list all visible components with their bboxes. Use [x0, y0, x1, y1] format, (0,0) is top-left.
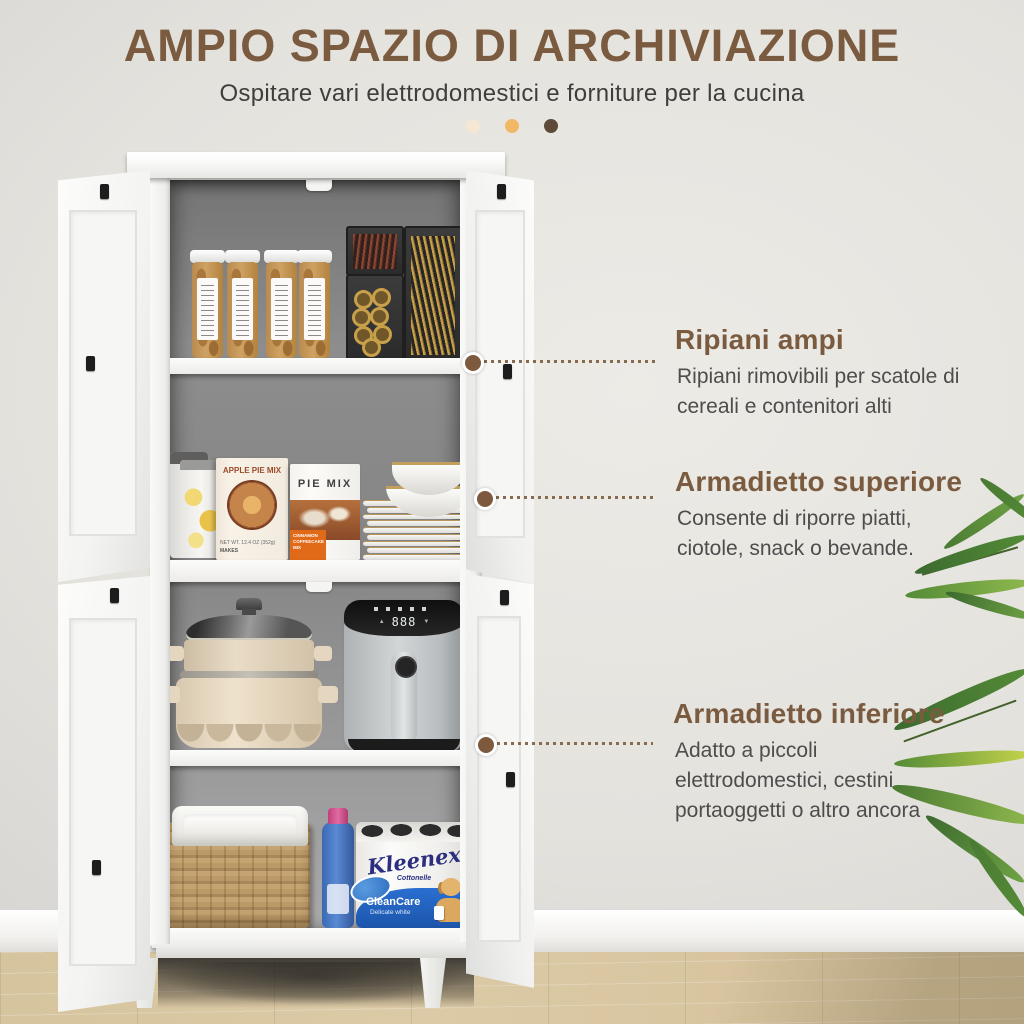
apple-pie-box-net-weight: NET WT. 12.4 OZ (352g)	[220, 540, 275, 546]
jar-label	[271, 278, 292, 340]
kleenex-delicate-white: Delicate white	[370, 909, 410, 916]
upper-left-door	[58, 168, 150, 582]
hinge-icon	[503, 364, 512, 379]
display-digits: 888	[392, 615, 417, 629]
floor-shadow	[600, 952, 1024, 1024]
hinge-icon	[92, 860, 101, 875]
callout-dot-inferiore	[475, 734, 497, 756]
air-fryer-icons	[374, 607, 434, 611]
decor-dot-1	[466, 119, 480, 133]
toilet-paper-pack: Kleenex Cottonelle CleanCare Delicate wh…	[356, 822, 472, 928]
lower-right-door	[466, 574, 534, 988]
door-catch-middle	[306, 582, 332, 592]
door-catch-top	[306, 180, 332, 191]
apple-pie-mix-box: APPLE PIE MIX NET WT. 12.4 OZ (352g) MAK…	[216, 458, 288, 560]
noodle-container	[346, 226, 404, 276]
door-panel	[69, 618, 137, 966]
callout-line-inferiore	[497, 742, 653, 745]
pie-mix-box: PIE MIX CINNAMON COFFEECAKE MIX	[290, 464, 360, 560]
cabinet-plinth	[156, 944, 476, 958]
jar-label	[304, 278, 325, 340]
door-panel	[69, 210, 137, 536]
cabinet-left-stile	[150, 176, 170, 946]
callout-body: Consente di riporre piatti, ciotole, sna…	[677, 504, 977, 564]
decor-dots	[0, 119, 1024, 133]
hinge-icon	[100, 184, 109, 199]
hinge-icon	[500, 590, 509, 605]
detergent-bottle	[322, 822, 354, 928]
glass-lid	[186, 615, 312, 641]
decor-dot-2	[505, 119, 519, 133]
up-arrow-icon: ▲	[379, 619, 385, 625]
callout-armadietto-inferiore: Armadietto inferiore Adatto a piccoli el…	[673, 698, 1003, 825]
jar-label	[197, 278, 218, 340]
callout-armadietto-superiore: Armadietto superiore Consente di riporre…	[675, 466, 1005, 564]
jar-label	[232, 278, 253, 340]
paper-rolls-top	[356, 822, 472, 842]
pasta-nest-container	[346, 274, 404, 362]
callout-body: Ripiani rimovibili per scatole di cereal…	[677, 362, 977, 422]
pie-box-title: PIE MIX	[290, 478, 360, 490]
down-arrow-icon: ▼	[423, 619, 429, 625]
basket-liner	[172, 806, 308, 846]
callout-title: Armadietto inferiore	[673, 698, 1003, 730]
almond-jar	[299, 250, 330, 358]
hinge-icon	[497, 184, 506, 199]
hinge-icon	[110, 588, 119, 603]
callout-body: Adatto a piccoli elettrodomestici, cesti…	[675, 736, 947, 825]
page-title: AMPIO SPAZIO DI ARCHIVIAZIONE	[0, 20, 1024, 72]
cabinet-top-board	[127, 152, 505, 178]
hinge-icon	[506, 772, 515, 787]
page-subtitle: Ospitare vari elettrodomestici e fornitu…	[0, 80, 1024, 108]
almond-jar	[227, 250, 258, 358]
product-infographic: AMPIO SPAZIO DI ARCHIVIAZIONE Ospitare v…	[0, 0, 1024, 1024]
apple-pie-box-title: APPLE PIE MIX	[216, 466, 288, 475]
upper-right-door	[466, 168, 534, 584]
air-fryer: ▲ 888 ▼	[344, 600, 464, 752]
callout-line-superiore	[496, 496, 656, 499]
spaghetti-container	[404, 226, 462, 362]
hinge-icon	[86, 356, 95, 371]
almond-jar	[192, 250, 223, 358]
callout-dot-ripiani	[462, 352, 484, 374]
almond-jar	[266, 250, 297, 358]
callout-dot-superiore	[474, 488, 496, 510]
kleenex-cleancare: CleanCare	[366, 896, 420, 908]
callout-title: Armadietto superiore	[675, 466, 1005, 498]
pie-box-band: CINNAMON COFFEECAKE MIX	[290, 530, 326, 560]
air-fryer-handle-button	[395, 656, 417, 678]
decor-dot-3	[544, 119, 558, 133]
lower-left-door	[58, 576, 150, 1012]
middle-divider	[152, 560, 480, 582]
callout-ripiani-ampi: Ripiani ampi Ripiani rimovibili per scat…	[675, 324, 995, 422]
removable-shelf	[168, 358, 462, 374]
apple-pie-box-makes: MAKES	[220, 548, 238, 554]
air-fryer-control-panel: ▲ 888 ▼	[344, 600, 464, 636]
pie-illustration	[229, 482, 275, 528]
callout-line-ripiani	[484, 360, 658, 363]
steamer-pot	[166, 598, 332, 750]
air-fryer-display: ▲ 888 ▼	[368, 613, 440, 631]
removable-shelf	[168, 750, 462, 766]
callout-title: Ripiani ampi	[675, 324, 995, 356]
